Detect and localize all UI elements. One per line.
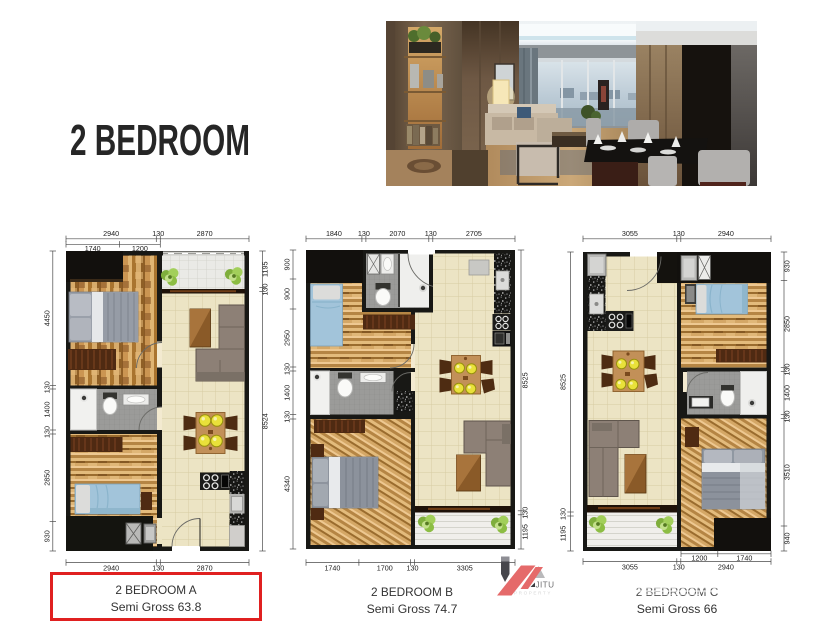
svg-text:Semi Gross 74.7: Semi Gross 74.7 bbox=[367, 602, 458, 616]
svg-text:Semi Gross 63.8: Semi Gross 63.8 bbox=[111, 600, 202, 614]
svg-text:2940: 2940 bbox=[718, 229, 734, 238]
svg-text:1400: 1400 bbox=[43, 402, 52, 418]
svg-text:2 BEDROOM: 2 BEDROOM bbox=[70, 116, 250, 165]
svg-text:130: 130 bbox=[358, 229, 370, 238]
svg-text:PROPERTY: PROPERTY bbox=[514, 590, 552, 595]
svg-text:940: 940 bbox=[783, 533, 792, 545]
svg-text:2850: 2850 bbox=[43, 470, 52, 486]
svg-text:3305: 3305 bbox=[457, 564, 473, 573]
svg-text:130: 130 bbox=[283, 411, 292, 423]
svg-text:1400: 1400 bbox=[283, 385, 292, 401]
svg-text:130: 130 bbox=[521, 507, 530, 519]
svg-text:2070: 2070 bbox=[389, 229, 405, 238]
svg-text:3055: 3055 bbox=[622, 563, 638, 572]
svg-text:130: 130 bbox=[261, 284, 270, 296]
svg-text:2870: 2870 bbox=[197, 564, 213, 573]
svg-text:130: 130 bbox=[559, 508, 568, 520]
svg-text:2705: 2705 bbox=[466, 229, 482, 238]
svg-text:2940: 2940 bbox=[103, 564, 119, 573]
svg-text:130: 130 bbox=[152, 564, 164, 573]
svg-text:2 BEDROOM B: 2 BEDROOM B bbox=[371, 585, 453, 599]
svg-text:4450: 4450 bbox=[43, 310, 52, 326]
svg-text:JITU: JITU bbox=[536, 581, 555, 590]
svg-text:1740: 1740 bbox=[324, 564, 340, 573]
svg-text:3510: 3510 bbox=[783, 464, 792, 480]
svg-text:2940: 2940 bbox=[718, 563, 734, 572]
svg-text:1195: 1195 bbox=[521, 524, 530, 539]
svg-text:130: 130 bbox=[152, 229, 164, 238]
svg-text:130: 130 bbox=[43, 381, 52, 393]
svg-text:130: 130 bbox=[283, 363, 292, 375]
svg-text:1200: 1200 bbox=[132, 244, 148, 253]
svg-text:2940: 2940 bbox=[103, 229, 119, 238]
svg-text:1700: 1700 bbox=[377, 564, 393, 573]
svg-text:130: 130 bbox=[407, 564, 419, 573]
svg-text:900: 900 bbox=[283, 288, 292, 300]
svg-text:130: 130 bbox=[783, 411, 792, 423]
svg-text:1740: 1740 bbox=[85, 244, 101, 253]
svg-text:Semi Gross 66: Semi Gross 66 bbox=[637, 602, 718, 616]
svg-text:1195: 1195 bbox=[559, 526, 568, 541]
svg-text:2850: 2850 bbox=[783, 316, 792, 332]
svg-text:930: 930 bbox=[43, 530, 52, 542]
svg-text:8525: 8525 bbox=[559, 374, 568, 390]
svg-text:1195: 1195 bbox=[261, 262, 270, 277]
svg-text:900: 900 bbox=[283, 259, 292, 271]
svg-text:4340: 4340 bbox=[283, 476, 292, 492]
svg-text:8525: 8525 bbox=[521, 372, 530, 388]
svg-text:2 BEDROOM A: 2 BEDROOM A bbox=[115, 583, 196, 597]
svg-text:1400: 1400 bbox=[783, 385, 792, 401]
svg-text:8524: 8524 bbox=[261, 413, 270, 429]
svg-text:3055: 3055 bbox=[622, 229, 638, 238]
svg-text:2950: 2950 bbox=[283, 330, 292, 346]
svg-text:2870: 2870 bbox=[197, 229, 213, 238]
svg-text:130: 130 bbox=[43, 426, 52, 438]
svg-text:1840: 1840 bbox=[326, 229, 342, 238]
svg-text:130: 130 bbox=[673, 563, 685, 572]
svg-text:130: 130 bbox=[783, 364, 792, 376]
svg-text:130: 130 bbox=[673, 229, 685, 238]
svg-text:930: 930 bbox=[783, 260, 792, 272]
svg-text:130: 130 bbox=[425, 229, 437, 238]
